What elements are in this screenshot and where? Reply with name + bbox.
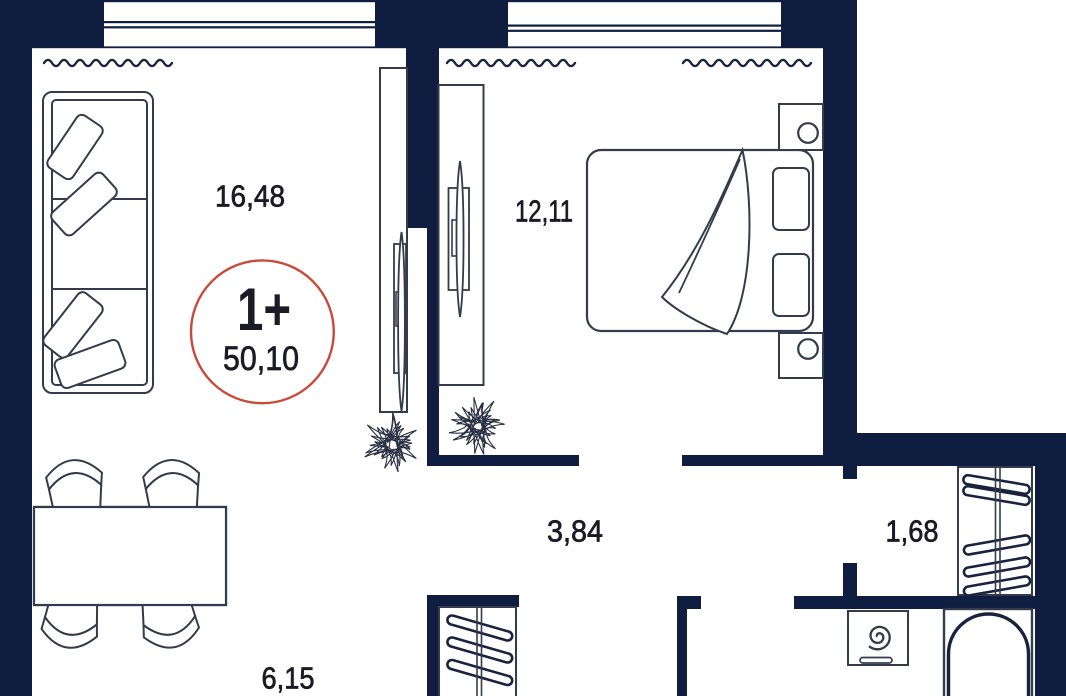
svg-text:1,68: 1,68 xyxy=(886,514,939,549)
svg-text:50,10: 50,10 xyxy=(223,340,299,378)
svg-text:3,84: 3,84 xyxy=(547,514,603,549)
svg-text:16,48: 16,48 xyxy=(215,179,285,214)
svg-text:12,11: 12,11 xyxy=(515,194,573,229)
svg-text:1+: 1+ xyxy=(237,276,291,343)
svg-text:6,15: 6,15 xyxy=(262,661,315,696)
